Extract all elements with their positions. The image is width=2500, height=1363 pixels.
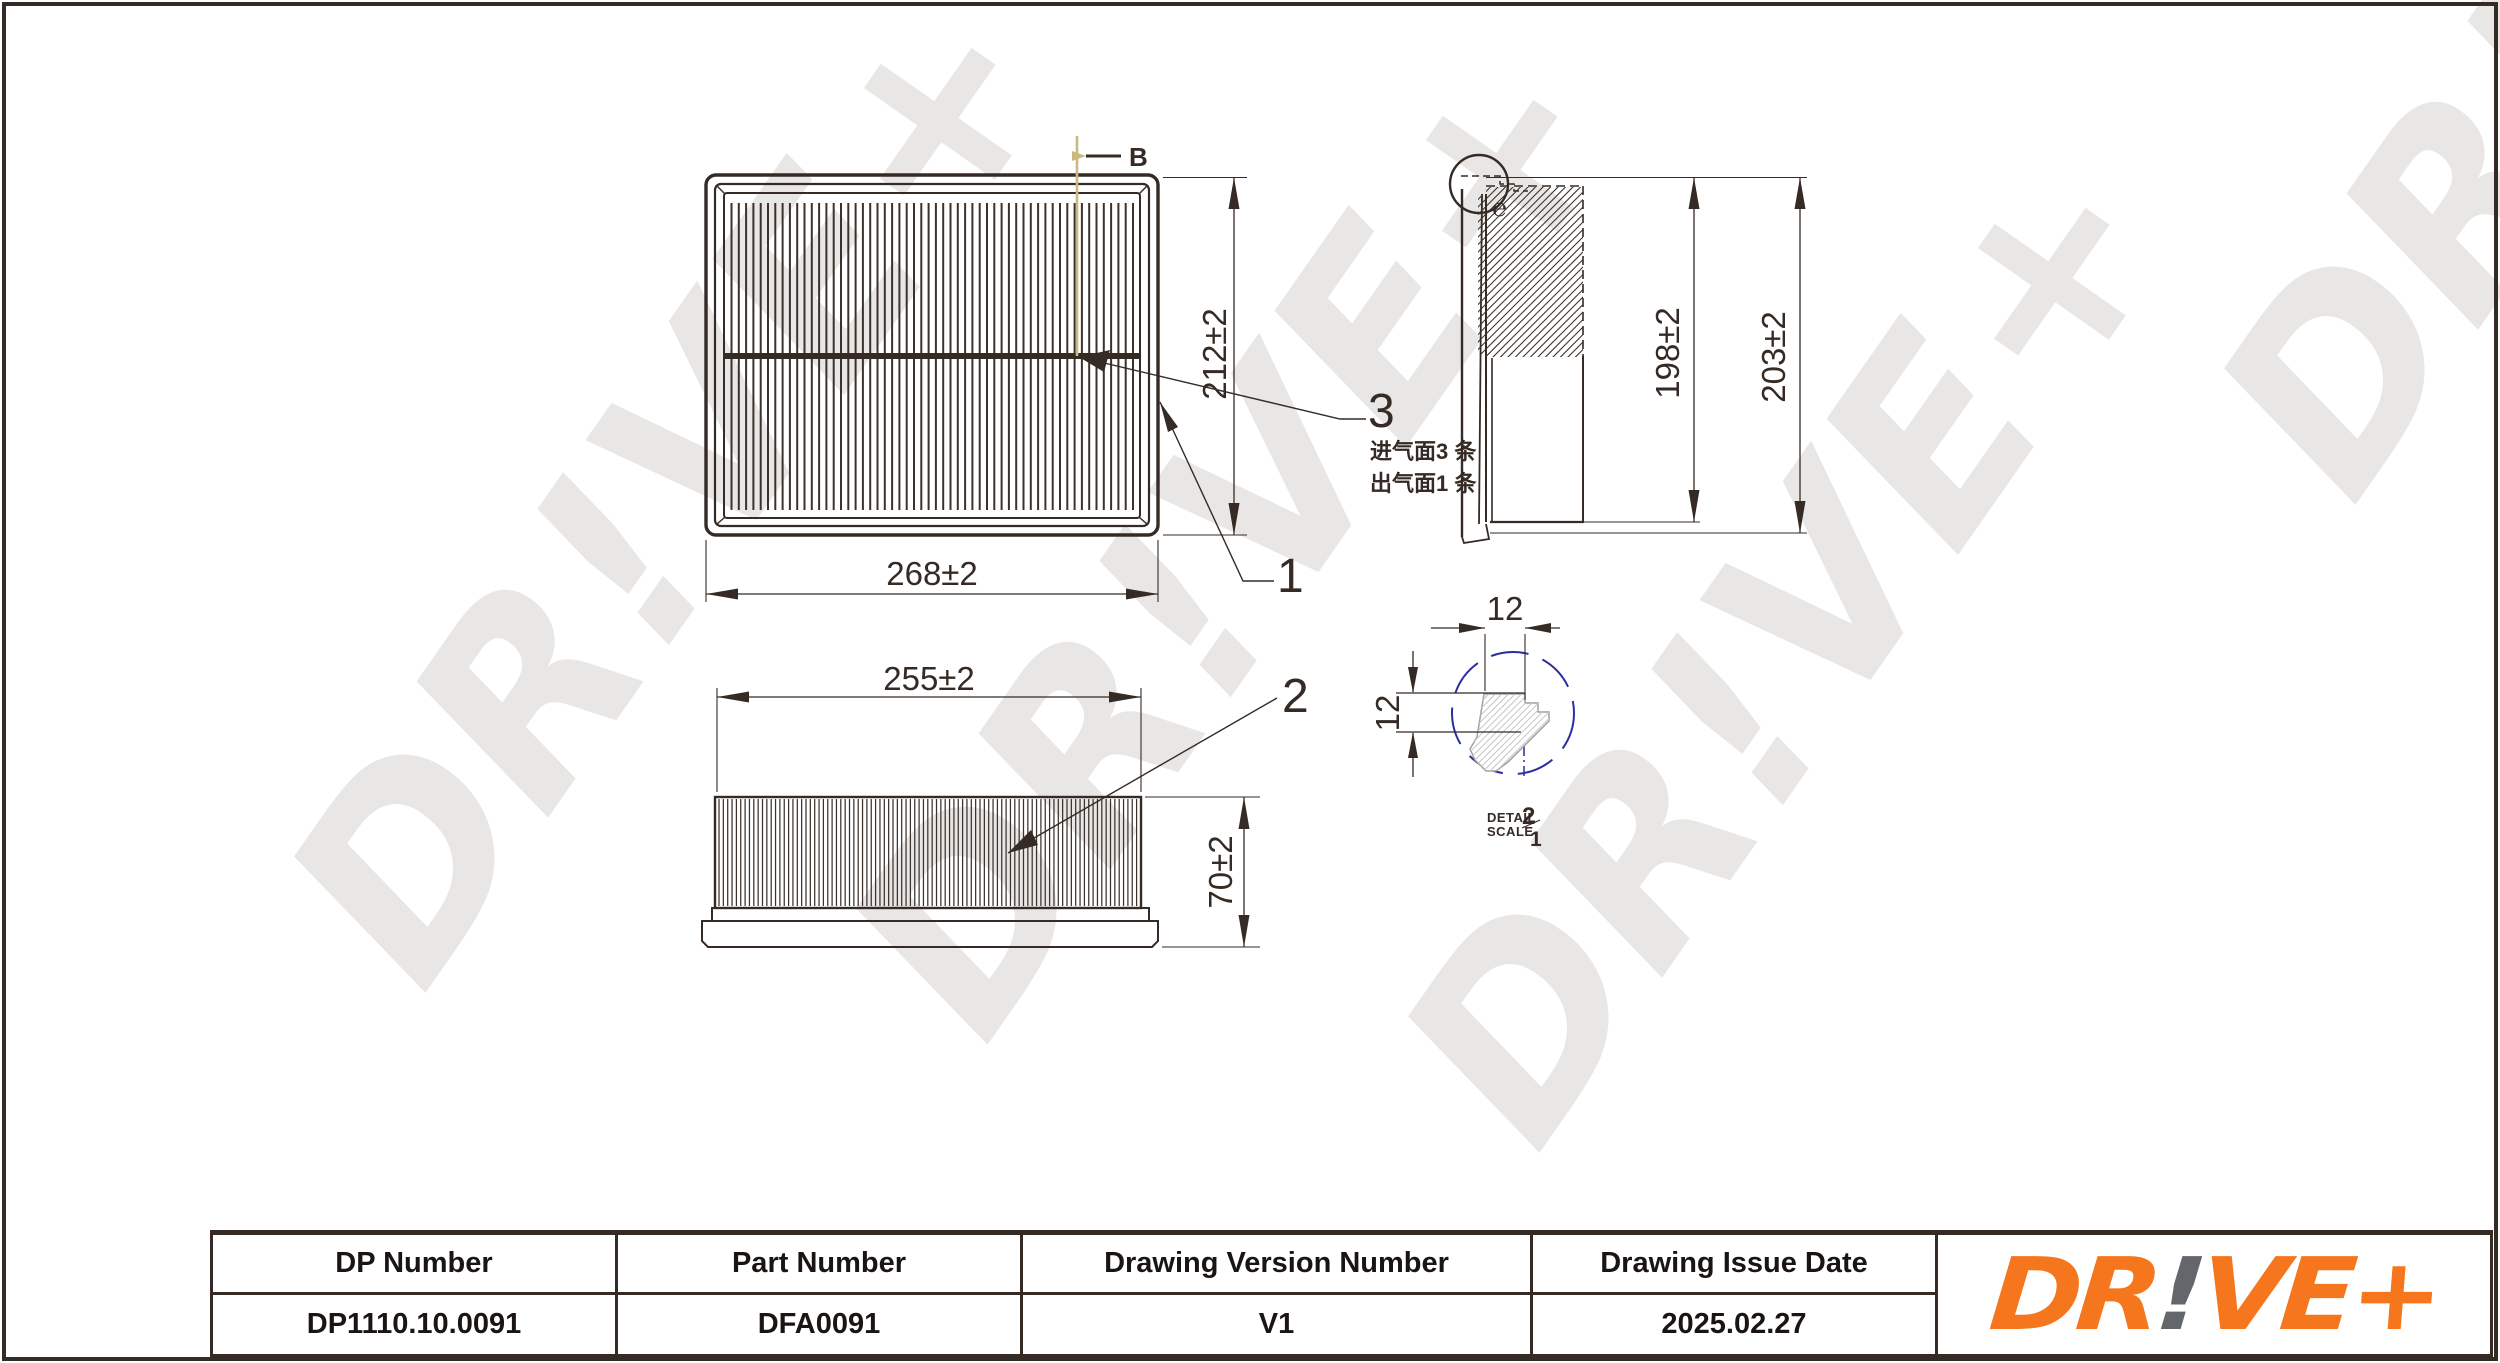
detail-dim-width: 12 — [1487, 590, 1524, 627]
logo-ve-plus: VE+ — [2196, 1236, 2442, 1353]
front-view — [702, 797, 1158, 947]
profile-hatch — [1380, 660, 1705, 790]
dim-height-inner: 198±2 — [1649, 307, 1686, 399]
section-line-b: B — [1072, 136, 1148, 356]
dim-width-front: 255±2 — [883, 660, 975, 697]
detail-mark: ℮ — [1492, 194, 1507, 222]
value-dp-number: DP1110.10.0091 — [213, 1295, 618, 1354]
header-issue-date: Drawing Issue Date — [1533, 1235, 1938, 1295]
dim-212: 212±2 — [1163, 178, 1247, 536]
detail-dim-height: 12 — [1369, 695, 1406, 732]
technical-drawing: B 268±2 212±2 1 3 — [0, 0, 2500, 1363]
value-issue-date: 2025.02.27 — [1533, 1295, 1938, 1354]
logo-cell: DR!VE+ — [1938, 1235, 2490, 1354]
value-drawing-version: V1 — [1023, 1295, 1533, 1354]
header-drawing-version: Drawing Version Number — [1023, 1235, 1533, 1295]
detail-scale-bottom: 1 — [1530, 828, 1542, 851]
dim-198-203: 198±2 203±2 — [1486, 178, 1807, 534]
logo-dr: DR — [1986, 1236, 2161, 1353]
callout-2: 2 — [1282, 670, 1309, 723]
dim-height-outer: 203±2 — [1755, 311, 1792, 403]
title-block: DP Number Part Number Drawing Version Nu… — [210, 1230, 2493, 1357]
section-label-b: B — [1129, 142, 1148, 172]
header-part-number: Part Number — [618, 1235, 1023, 1295]
detail-scale-top: 2 — [1522, 803, 1535, 830]
callout-1: 1 — [1277, 550, 1304, 603]
section-hatch — [1300, 175, 1788, 370]
dim-70: 70±2 — [1145, 797, 1260, 947]
callout-3: 3 — [1368, 385, 1395, 438]
dim-255: 255±2 — [717, 660, 1141, 792]
detail-view: 12 12 DETAIL SCALE 2 1 — [1369, 590, 1705, 851]
drawing-sheet: DR!VE+ DR!VE+ DR!VE+ DR!VE+ — [0, 0, 2500, 1363]
value-part-number: DFA0091 — [618, 1295, 1023, 1354]
sheet-border — [4, 4, 2496, 1359]
drive-plus-logo: DR!VE+ — [1986, 1236, 2442, 1353]
dim-height-front: 70±2 — [1202, 835, 1239, 908]
header-dp-number: DP Number — [213, 1235, 618, 1295]
dim-width-plan: 268±2 — [886, 555, 978, 592]
dim-268: 268±2 — [706, 540, 1158, 602]
